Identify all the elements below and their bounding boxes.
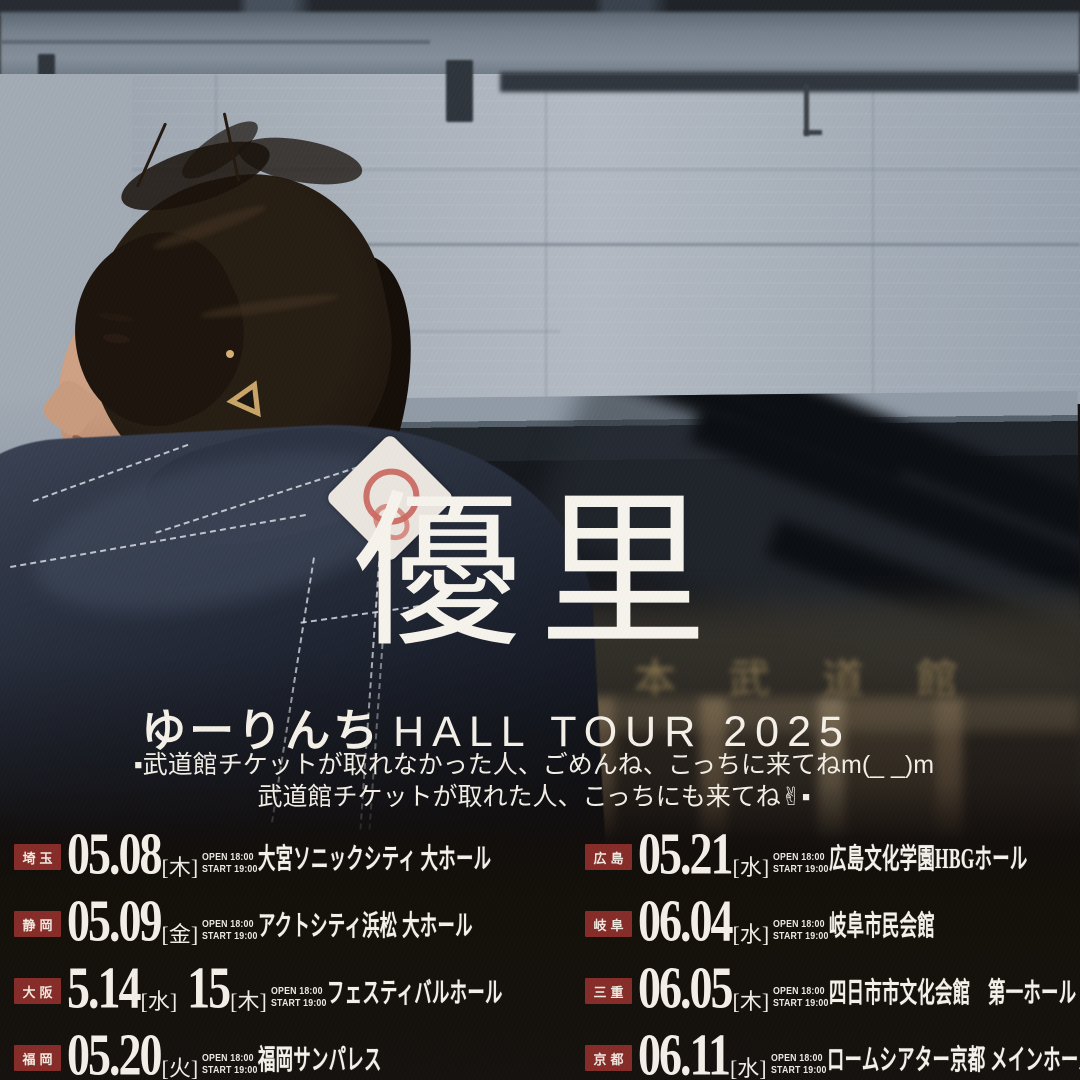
venue-name: 大宮ソニックシティ 大ホール [258, 837, 491, 877]
venue-name: フェスティバルホール [327, 971, 503, 1011]
start-time: START 19:00 [202, 864, 246, 877]
date-day: [火] [162, 1051, 199, 1080]
open-time: OPEN 18:00 [773, 852, 817, 865]
subtitle-japanese: ゆーりんち [141, 705, 381, 756]
wall-joint [872, 74, 874, 404]
date-row: 京都06.11[水]OPEN 18:00START 19:00ロームシアター京都… [585, 1031, 1080, 1080]
wall-hook [804, 130, 822, 135]
start-time: START 19:00 [202, 931, 246, 944]
showtimes: OPEN 18:00START 19:00 [773, 986, 817, 1011]
date-day: [水] [733, 917, 770, 949]
open-time: OPEN 18:00 [271, 986, 315, 999]
start-time: START 19:00 [771, 1065, 815, 1078]
date-row: 三重06.05[木]OPEN 18:00START 19:00四日市市文化会館 … [585, 964, 1080, 1018]
fascia-shadow-slot [500, 72, 1080, 92]
message-line-1: ▪武道館チケットが取れなかった人、ごめんね、こっちに来てねm(_ _)m [0, 750, 1068, 781]
artist-title: 優 里 [0, 490, 1060, 658]
stud-earring [226, 350, 234, 358]
date-value: 05.09 [67, 892, 161, 951]
date-day-2: [木] [230, 984, 267, 1016]
open-time: OPEN 18:00 [202, 919, 246, 932]
date-row: 岐阜06.04[水]OPEN 18:00START 19:00岐阜市民会館 [585, 897, 1080, 951]
wall-hook [804, 84, 809, 136]
date-value: 06.11 [638, 1026, 729, 1080]
prefecture-badge: 岐阜 [585, 911, 632, 937]
building-fascia [0, 12, 1080, 78]
start-time: START 19:00 [271, 998, 315, 1011]
date-value: 06.04 [638, 892, 732, 951]
venue-name: 四日市市文化会館 第一ホール [829, 971, 1076, 1011]
showtimes: OPEN 18:00START 19:00 [771, 1053, 815, 1078]
date-row: 福岡05.20[火]OPEN 18:00START 19:00福岡サンパレス [14, 1031, 634, 1080]
subtitle-english: HALL TOUR 2025 [393, 708, 851, 756]
open-time: OPEN 18:00 [202, 852, 246, 865]
showtimes: OPEN 18:00START 19:00 [773, 919, 817, 944]
date-day: [木] [733, 984, 770, 1016]
date-value: 05.20 [67, 1026, 161, 1080]
showtimes: OPEN 18:00START 19:00 [773, 852, 817, 877]
venue-name: 福岡サンパレス [258, 1038, 382, 1078]
wall-joint [545, 74, 547, 404]
date-row: 埼玉05.08[木]OPEN 18:00START 19:00大宮ソニックシティ… [14, 830, 634, 884]
start-time: START 19:00 [202, 1065, 246, 1078]
venue-name: アクトシティ浜松 大ホール [258, 904, 473, 944]
start-time: START 19:00 [773, 864, 817, 877]
showtimes: OPEN 18:00START 19:00 [271, 986, 315, 1011]
message-line-2: 武道館チケットが取れた人、こっちにも来てね✌▪ [0, 782, 1068, 813]
prefecture-badge: 京都 [585, 1045, 632, 1071]
open-time: OPEN 18:00 [771, 1053, 815, 1066]
venue-name: 岐阜市民会館 [829, 904, 935, 944]
date-day: [水] [730, 1051, 767, 1080]
venue-name: ロームシアター京都 メインホール [827, 1038, 1080, 1078]
date-value: 05.21 [638, 825, 732, 884]
date-value: 05.08 [67, 825, 161, 884]
date-value: 5.14 [67, 959, 140, 1018]
date-day: [木] [162, 850, 199, 882]
prefecture-badge: 大阪 [14, 978, 61, 1004]
open-time: OPEN 18:00 [773, 919, 817, 932]
date-value: 06.05 [638, 959, 732, 1018]
start-time: START 19:00 [773, 931, 817, 944]
date-row: 広島05.21[水]OPEN 18:00START 19:00広島文化学園HBG… [585, 830, 1080, 884]
showtimes: OPEN 18:00START 19:00 [202, 919, 246, 944]
start-time: START 19:00 [773, 998, 817, 1011]
tour-dates-right-column: 広島05.21[水]OPEN 18:00START 19:00広島文化学園HBG… [585, 830, 1080, 1080]
date-day: [水] [733, 850, 770, 882]
open-time: OPEN 18:00 [202, 1053, 246, 1066]
open-time: OPEN 18:00 [773, 986, 817, 999]
fascia-line [0, 40, 430, 44]
prefecture-badge: 埼玉 [14, 844, 61, 870]
tour-dates-left-column: 埼玉05.08[木]OPEN 18:00START 19:00大宮ソニックシティ… [14, 830, 634, 1080]
fascia-slot [446, 60, 473, 122]
date-value-2: 15 [187, 959, 229, 1018]
date-row: 大阪5.14[水]15[木]OPEN 18:00START 19:00フェスティ… [14, 964, 634, 1018]
prefecture-badge: 静岡 [14, 911, 61, 937]
venue-name: 広島文化学園HBGホール [829, 837, 1028, 877]
prefecture-badge: 広島 [585, 844, 632, 870]
tour-poster: 日本武道館 優 里 [0, 0, 1080, 1080]
date-day: [金] [162, 917, 199, 949]
date-day: [水] [141, 984, 178, 1016]
date-row: 静岡05.09[金]OPEN 18:00START 19:00アクトシティ浜松 … [14, 897, 634, 951]
showtimes: OPEN 18:00START 19:00 [202, 1053, 246, 1078]
prefecture-badge: 三重 [585, 978, 632, 1004]
prefecture-badge: 福岡 [14, 1045, 61, 1071]
showtimes: OPEN 18:00START 19:00 [202, 852, 246, 877]
